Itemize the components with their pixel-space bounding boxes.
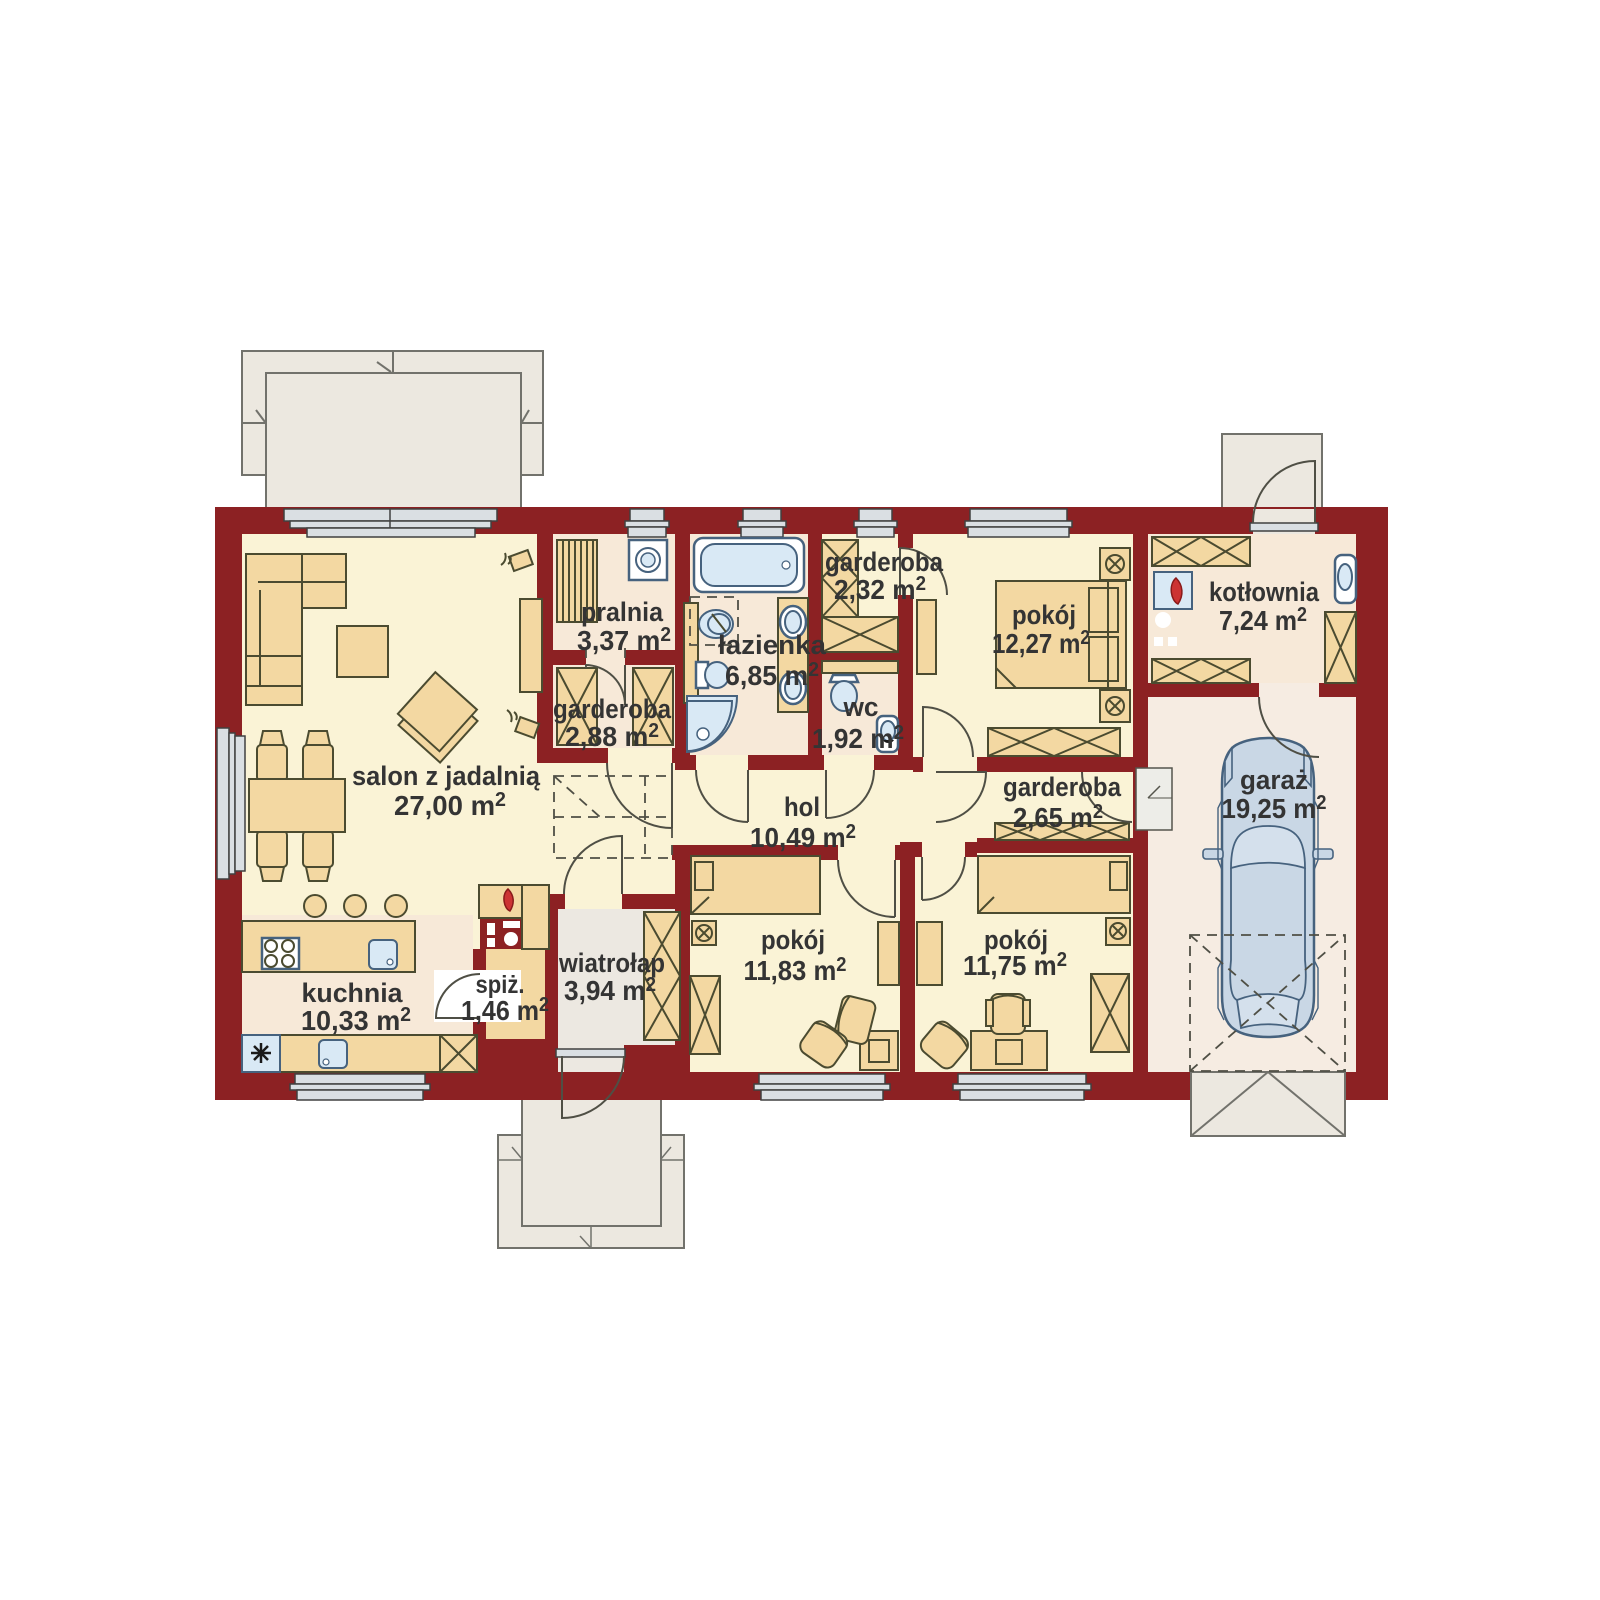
svg-text:kuchnia: kuchnia: [302, 978, 404, 1008]
svg-text:2,32 m2: 2,32 m2: [834, 573, 926, 605]
svg-text:11,75 m2: 11,75 m2: [963, 949, 1067, 981]
svg-text:27,00 m2: 27,00 m2: [394, 789, 506, 821]
svg-text:3,94 m2: 3,94 m2: [564, 974, 656, 1006]
svg-text:10,33 m2: 10,33 m2: [301, 1004, 411, 1036]
svg-text:salon z jadalnią: salon z jadalnią: [352, 761, 541, 791]
svg-text:pralnia: pralnia: [581, 597, 664, 627]
svg-text:1,92 m2: 1,92 m2: [812, 722, 904, 754]
svg-text:1,46 m2: 1,46 m2: [461, 994, 549, 1026]
svg-text:12,27 m2: 12,27 m2: [992, 627, 1090, 659]
svg-text:pokój: pokój: [1012, 600, 1076, 630]
svg-text:11,83 m2: 11,83 m2: [744, 954, 847, 986]
svg-text:garderoba: garderoba: [1003, 772, 1122, 802]
svg-text:10,49 m2: 10,49 m2: [750, 821, 856, 853]
svg-text:19,25 m2: 19,25 m2: [1222, 792, 1327, 824]
svg-text:6,85 m2: 6,85 m2: [725, 659, 819, 691]
svg-text:hol: hol: [784, 792, 820, 822]
svg-text:pokój: pokój: [761, 925, 825, 955]
svg-text:7,24 m2: 7,24 m2: [1219, 604, 1307, 636]
svg-text:garderoba: garderoba: [825, 547, 944, 577]
svg-text:kotłownia: kotłownia: [1209, 577, 1320, 607]
svg-text:łazienka: łazienka: [718, 630, 827, 660]
svg-text:2,65 m2: 2,65 m2: [1013, 801, 1103, 833]
svg-text:3,37 m2: 3,37 m2: [577, 624, 671, 656]
svg-text:garaż: garaż: [1240, 765, 1308, 795]
svg-text:wc: wc: [843, 692, 879, 722]
svg-text:2,88 m2: 2,88 m2: [565, 720, 659, 752]
